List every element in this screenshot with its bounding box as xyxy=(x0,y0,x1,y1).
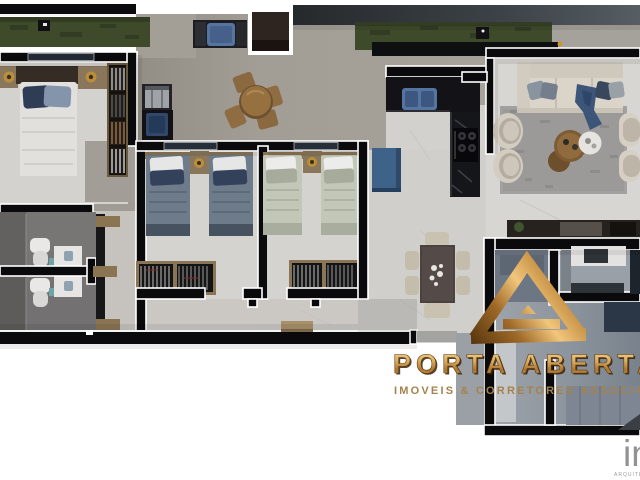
svg-text:IMOVEIS & CORRETORES ASSOCIADO: IMOVEIS & CORRETORES ASSOCIADOS xyxy=(394,385,640,397)
svg-text:ARQUITETURA: ARQUITETURA xyxy=(614,472,640,478)
svg-text:PORTA ABERTA: PORTA ABERTA xyxy=(393,349,640,379)
svg-text:in: in xyxy=(623,433,640,474)
